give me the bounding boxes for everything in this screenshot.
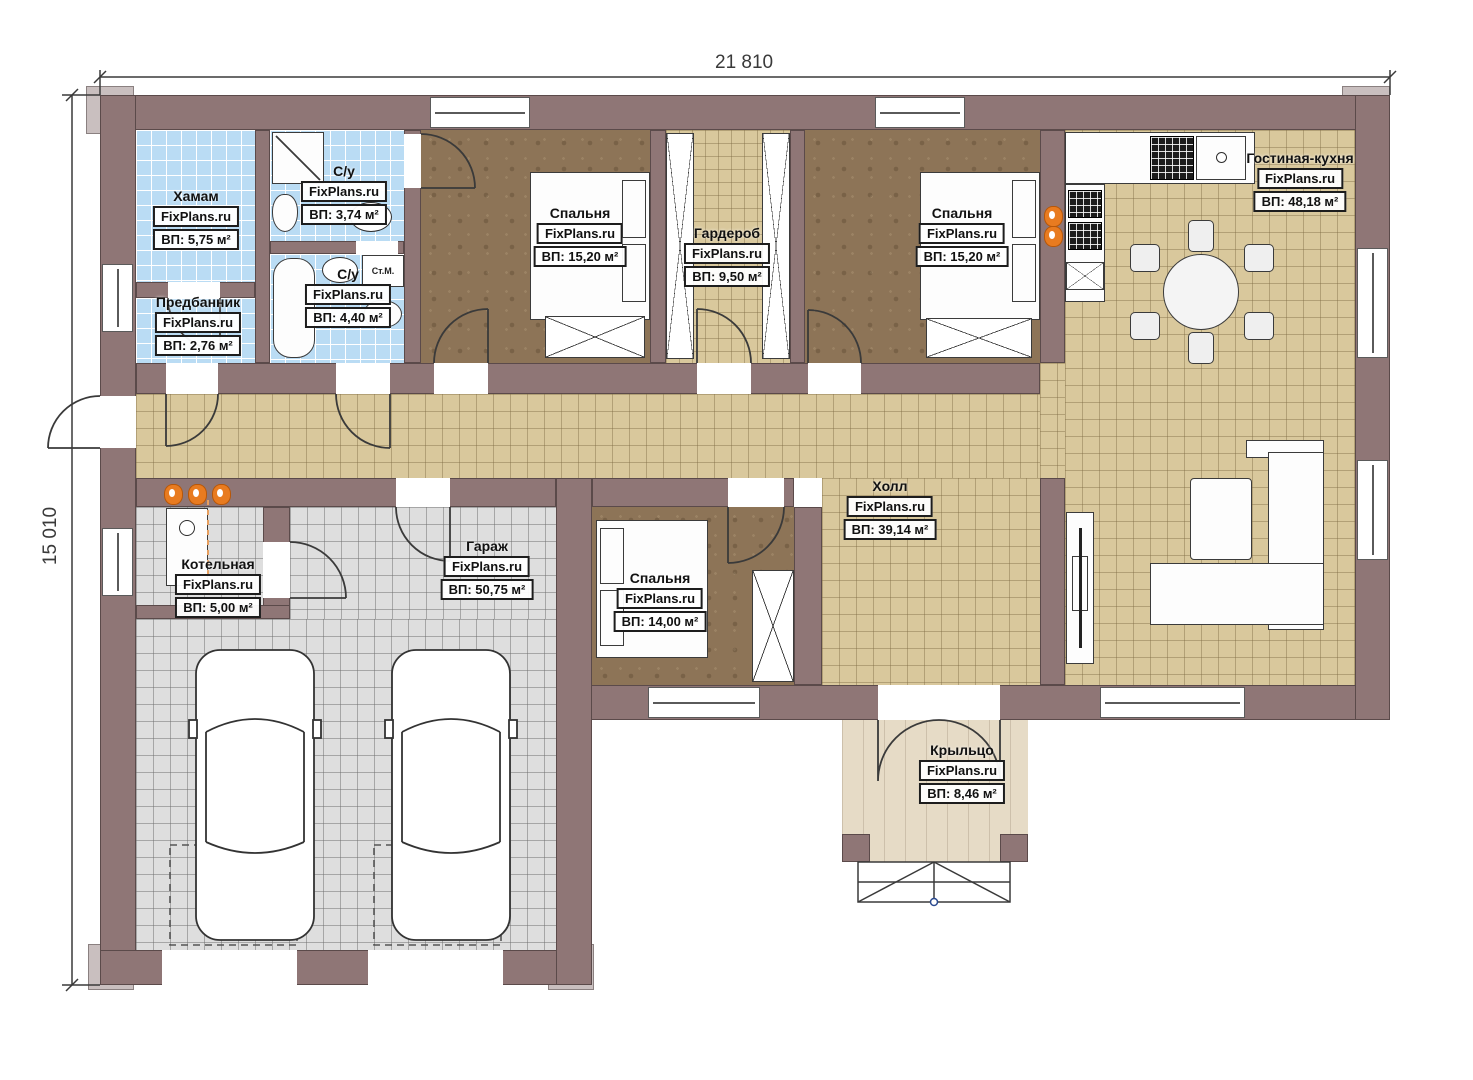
door-opening [166,363,218,394]
door-opening [878,685,1000,720]
floor-plan: 21 810 15 010 [0,0,1473,1080]
window [648,687,760,718]
door-opening [396,478,450,507]
room-area: ВП: 15,20 м² [534,246,627,267]
garage-gate-opening [162,950,297,985]
room-name: С/у [301,163,387,179]
wall [255,130,270,363]
porch-pier [842,834,870,862]
room-name: Спальня [534,205,627,221]
radiator [1044,226,1063,247]
watermark: FixPlans.ru [847,496,933,517]
corner-cabinet [1066,262,1104,290]
room-area: ВП: 5,00 м² [175,597,261,618]
room-area: ВП: 8,46 м² [919,783,1005,804]
room-name: Спальня [614,570,707,586]
pillow [1012,180,1036,238]
pillow [1012,244,1036,302]
watermark: FixPlans.ru [305,284,391,305]
room-label-wc1: С/у FixPlans.ru ВП: 3,74 м² [301,163,387,225]
wall [100,95,1390,130]
wall [556,478,592,985]
watermark: FixPlans.ru [919,223,1005,244]
door-opening [808,363,861,394]
door-opening [356,241,398,254]
room-name: Хамам [153,188,239,204]
wall [650,130,666,363]
room-label-wardrobe: Гардероб FixPlans.ru ВП: 9,50 м² [684,225,770,287]
room-area: ВП: 2,76 м² [155,335,241,356]
door-opening [263,542,290,598]
wall [136,363,1040,394]
hall-corridor-floor [136,394,1040,478]
room-area: ВП: 50,75 м² [441,579,534,600]
room-name: Гостиная-кухня [1246,150,1353,166]
chair [1130,244,1160,272]
wall [794,507,822,685]
coffee-table [1190,478,1252,560]
door-opening [728,478,784,507]
watermark: FixPlans.ru [617,588,703,609]
dimension-width: 21 810 [715,52,773,74]
room-name: Крыльцо [919,742,1005,758]
door-opening [336,363,390,394]
window [102,264,133,332]
window [1357,460,1388,560]
window [1100,687,1245,718]
chair [1244,312,1274,340]
room-name: Предбанник [155,294,241,310]
wardrobe-cabinet [545,316,645,358]
door-opening [434,363,488,394]
room-name: Гараж [441,538,534,554]
watermark: FixPlans.ru [919,760,1005,781]
wardrobe-cabinet [752,570,794,682]
room-area: ВП: 5,75 м² [153,229,239,250]
room-label-bedroom3: Спальня FixPlans.ru ВП: 14,00 м² [614,570,707,632]
wall [1355,95,1390,720]
radiator [188,484,207,505]
wardrobe-cabinet [926,318,1032,358]
wall [790,130,805,363]
stove [1068,190,1102,218]
dimension-height: 15 010 [40,507,62,565]
room-label-predbannik: Предбанник FixPlans.ru ВП: 2,76 м² [155,294,241,356]
room-label-boiler-room: Котельная FixPlans.ru ВП: 5,00 м² [175,556,261,618]
watermark: FixPlans.ru [175,574,261,595]
room-area: ВП: 3,74 м² [301,204,387,225]
radiator [1044,206,1063,227]
chair [1188,332,1214,364]
room-label-bedroom2: Спальня FixPlans.ru ВП: 15,20 м² [916,205,1009,267]
stove [1068,222,1102,250]
room-name: Спальня [916,205,1009,221]
boiler-dial [179,520,195,536]
chair [1188,220,1214,252]
room-label-garage: Гараж FixPlans.ru ВП: 50,75 м² [441,538,534,600]
door-opening [697,363,751,394]
room-area: ВП: 9,50 м² [684,266,770,287]
door-arc [48,396,100,448]
radiator [164,484,183,505]
faucet [1216,152,1227,163]
room-label-wc2: С/у FixPlans.ru ВП: 4,40 м² [305,266,391,328]
chair [1130,312,1160,340]
chair [1244,244,1274,272]
room-area: ВП: 4,40 м² [305,307,391,328]
room-area: ВП: 48,18 м² [1254,191,1347,212]
room-label-hall: Холл FixPlans.ru ВП: 39,14 м² [844,478,937,540]
watermark: FixPlans.ru [155,312,241,333]
door-opening [404,134,421,188]
sofa-chaise [1150,563,1324,625]
watermark: FixPlans.ru [1257,168,1343,189]
radiator [212,484,231,505]
room-name: Котельная [175,556,261,572]
room-area: ВП: 39,14 м² [844,519,937,540]
window [875,97,965,128]
watermark: FixPlans.ru [444,556,530,577]
dining-table [1163,254,1239,330]
room-name: Холл [844,478,937,494]
room-label-porch: Крыльцо FixPlans.ru ВП: 8,46 м² [919,742,1005,804]
tv-screen [1079,528,1082,648]
window [430,97,530,128]
room-label-living-kitchen: Гостиная-кухня FixPlans.ru ВП: 48,18 м² [1246,150,1353,212]
room-area: ВП: 14,00 м² [614,611,707,632]
kitchen-sink-drainer [1150,136,1194,180]
watermark: FixPlans.ru [684,243,770,264]
window [1357,248,1388,358]
room-name: Гардероб [684,225,770,241]
garage-floor [136,619,556,950]
watermark: FixPlans.ru [537,223,623,244]
porch-stairs [858,862,1010,906]
toilet [272,194,298,232]
porch-pier [1000,834,1028,862]
hall-passage-floor [1040,363,1065,478]
watermark: FixPlans.ru [301,181,387,202]
wall [1040,478,1065,685]
garage-gate-opening [368,950,503,985]
window [102,528,133,596]
room-name: С/у [305,266,391,282]
watermark: FixPlans.ru [153,206,239,227]
room-area: ВП: 15,20 м² [916,246,1009,267]
door-opening [100,396,136,448]
room-label-hamam: Хамам FixPlans.ru ВП: 5,75 м² [153,188,239,250]
room-label-bedroom1: Спальня FixPlans.ru ВП: 15,20 м² [534,205,627,267]
